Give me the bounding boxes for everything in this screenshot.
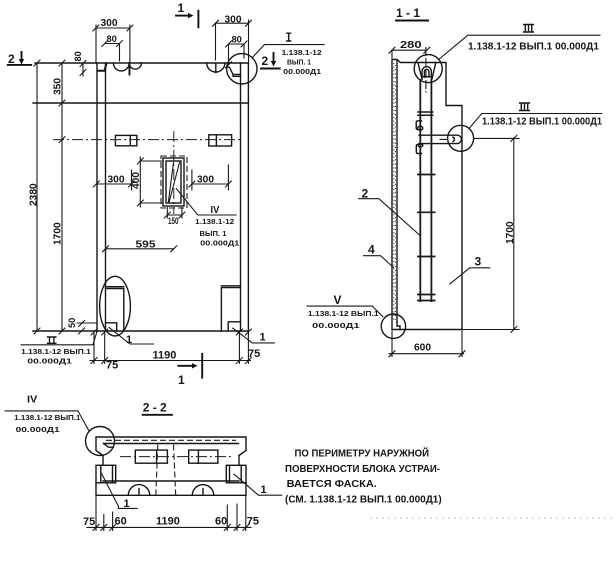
svg-text:1: 1 (178, 373, 185, 387)
svg-text:300: 300 (108, 174, 125, 185)
svg-text:80: 80 (107, 34, 117, 44)
svg-text:1190: 1190 (153, 350, 177, 362)
svg-text:60: 60 (115, 516, 127, 528)
svg-text:80: 80 (73, 51, 83, 61)
svg-text:1.138.1-12: 1.138.1-12 (195, 217, 234, 226)
svg-text:IV: IV (211, 205, 220, 216)
svg-text:75: 75 (83, 516, 95, 528)
svg-text:75: 75 (248, 348, 260, 360)
svg-text:595: 595 (136, 240, 156, 251)
svg-text:1: 1 (260, 332, 266, 344)
svg-text:4: 4 (368, 243, 375, 257)
svg-text:1.138.1-12 ВЫП.1: 1.138.1-12 ВЫП.1 (21, 347, 92, 356)
svg-text:1: 1 (261, 484, 267, 496)
svg-text:1.138.1-12: 1.138.1-12 (282, 48, 322, 57)
svg-text:80: 80 (232, 35, 242, 45)
svg-text:1: 1 (178, 1, 185, 15)
svg-text:ВЫП. 1: ВЫП. 1 (287, 57, 312, 66)
svg-text:1.138.1-12 ВЫП.1 00.000Д1: 1.138.1-12 ВЫП.1 00.000Д1 (468, 42, 599, 53)
svg-text:ВЫП. 1: ВЫП. 1 (200, 229, 228, 238)
svg-text:ВАЕТСЯ ФАСКА.: ВАЕТСЯ ФАСКА. (287, 479, 377, 490)
svg-text:50: 50 (67, 318, 77, 328)
svg-text:IV: IV (27, 394, 38, 405)
svg-text:300: 300 (101, 18, 118, 29)
svg-text:2: 2 (8, 52, 15, 66)
svg-text:600: 600 (414, 343, 431, 354)
svg-text:1190: 1190 (156, 516, 180, 528)
svg-text:75: 75 (247, 516, 259, 528)
svg-text:300: 300 (197, 174, 214, 185)
svg-text:60: 60 (215, 516, 227, 528)
svg-text:1.138.1-12 ВЫП.1: 1.138.1-12 ВЫП.1 (14, 413, 81, 422)
svg-text:150: 150 (168, 216, 179, 226)
svg-text:1 - 1: 1 - 1 (396, 6, 420, 20)
svg-text:(СМ. 1.138.1-12 ВЫП.1 00.000Д1: (СМ. 1.138.1-12 ВЫП.1 00.000Д1) (285, 495, 442, 506)
svg-text:00.000Д1: 00.000Д1 (283, 67, 322, 76)
svg-text:3: 3 (475, 255, 482, 269)
svg-text:400: 400 (131, 172, 142, 189)
svg-text:1.138.1-12 ВЫП.1: 1.138.1-12 ВЫП.1 (308, 309, 380, 318)
svg-text:1.138.1-12 ВЫП.1 00.000Д1: 1.138.1-12 ВЫП.1 00.000Д1 (482, 117, 602, 128)
svg-text:V: V (334, 293, 342, 307)
svg-text:ПОВЕРХНОСТИ БЛОКА УСТРАИ-: ПОВЕРХНОСТИ БЛОКА УСТРАИ- (285, 464, 440, 475)
svg-text:1: 1 (124, 498, 130, 510)
svg-text:280: 280 (400, 40, 422, 51)
svg-text:00.000Д1: 00.000Д1 (16, 425, 61, 434)
svg-text:1: 1 (126, 334, 132, 346)
svg-text:2: 2 (262, 54, 269, 68)
svg-text:2 - 2: 2 - 2 (143, 401, 167, 415)
svg-text:75: 75 (106, 360, 118, 372)
svg-text:1700: 1700 (53, 222, 64, 245)
svg-text:350: 350 (53, 78, 64, 95)
svg-text:ПО ПЕРИМЕТРУ НАРУЖНОЙ: ПО ПЕРИМЕТРУ НАРУЖНОЙ (295, 447, 430, 460)
svg-text:00.000Д1: 00.000Д1 (27, 357, 72, 366)
svg-text:2380: 2380 (29, 183, 40, 206)
svg-text:00.000Д1: 00.000Д1 (200, 239, 240, 248)
svg-text:00.000Д1: 00.000Д1 (312, 321, 361, 330)
svg-text:1700: 1700 (505, 221, 516, 244)
svg-text:300: 300 (225, 15, 242, 26)
